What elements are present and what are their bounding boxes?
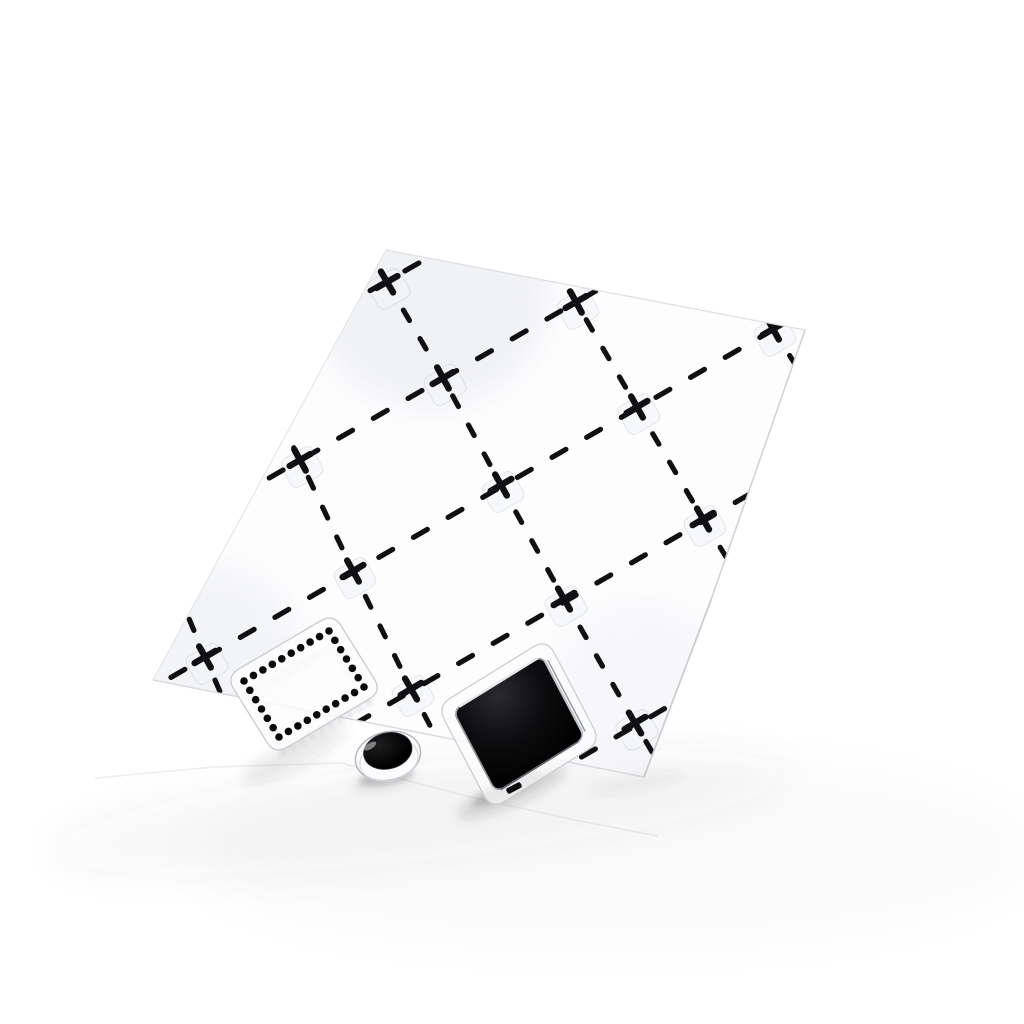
stamp-dot [264, 715, 272, 723]
stamp-dot [269, 661, 277, 669]
stamp-set-product-photo [0, 0, 1024, 1024]
stamp-dot [240, 677, 248, 685]
stamp-dot [325, 627, 333, 635]
stamp-dot [297, 644, 305, 652]
stamp-dot [351, 689, 359, 697]
stamp-dot [332, 700, 340, 708]
stamp-dot [316, 633, 324, 641]
stamp-dot [360, 683, 368, 691]
stamp-dot [294, 722, 302, 730]
stamp-dot [278, 655, 286, 663]
stamp-dot [252, 696, 260, 704]
stamp-dot [250, 672, 258, 680]
stamp-dot [269, 724, 277, 732]
photo-canvas [0, 0, 1024, 1024]
stamp-dot [341, 694, 349, 702]
stamp-dot [285, 728, 293, 736]
stamp-dot [259, 666, 267, 674]
stamp-dot [349, 665, 357, 673]
stamp-dot [354, 674, 362, 682]
stamp-dot [343, 655, 351, 663]
stamp-dot [331, 637, 339, 645]
stamp-dot [304, 717, 312, 725]
stamp-dot [337, 646, 345, 654]
stamp-dot [275, 733, 283, 741]
stamp-dot [322, 705, 330, 713]
stamp-dot [246, 687, 254, 695]
stamp-dot [313, 711, 321, 719]
stamp-dot [258, 705, 266, 713]
stamp-dot [306, 638, 314, 646]
stamp-dot [287, 649, 295, 657]
